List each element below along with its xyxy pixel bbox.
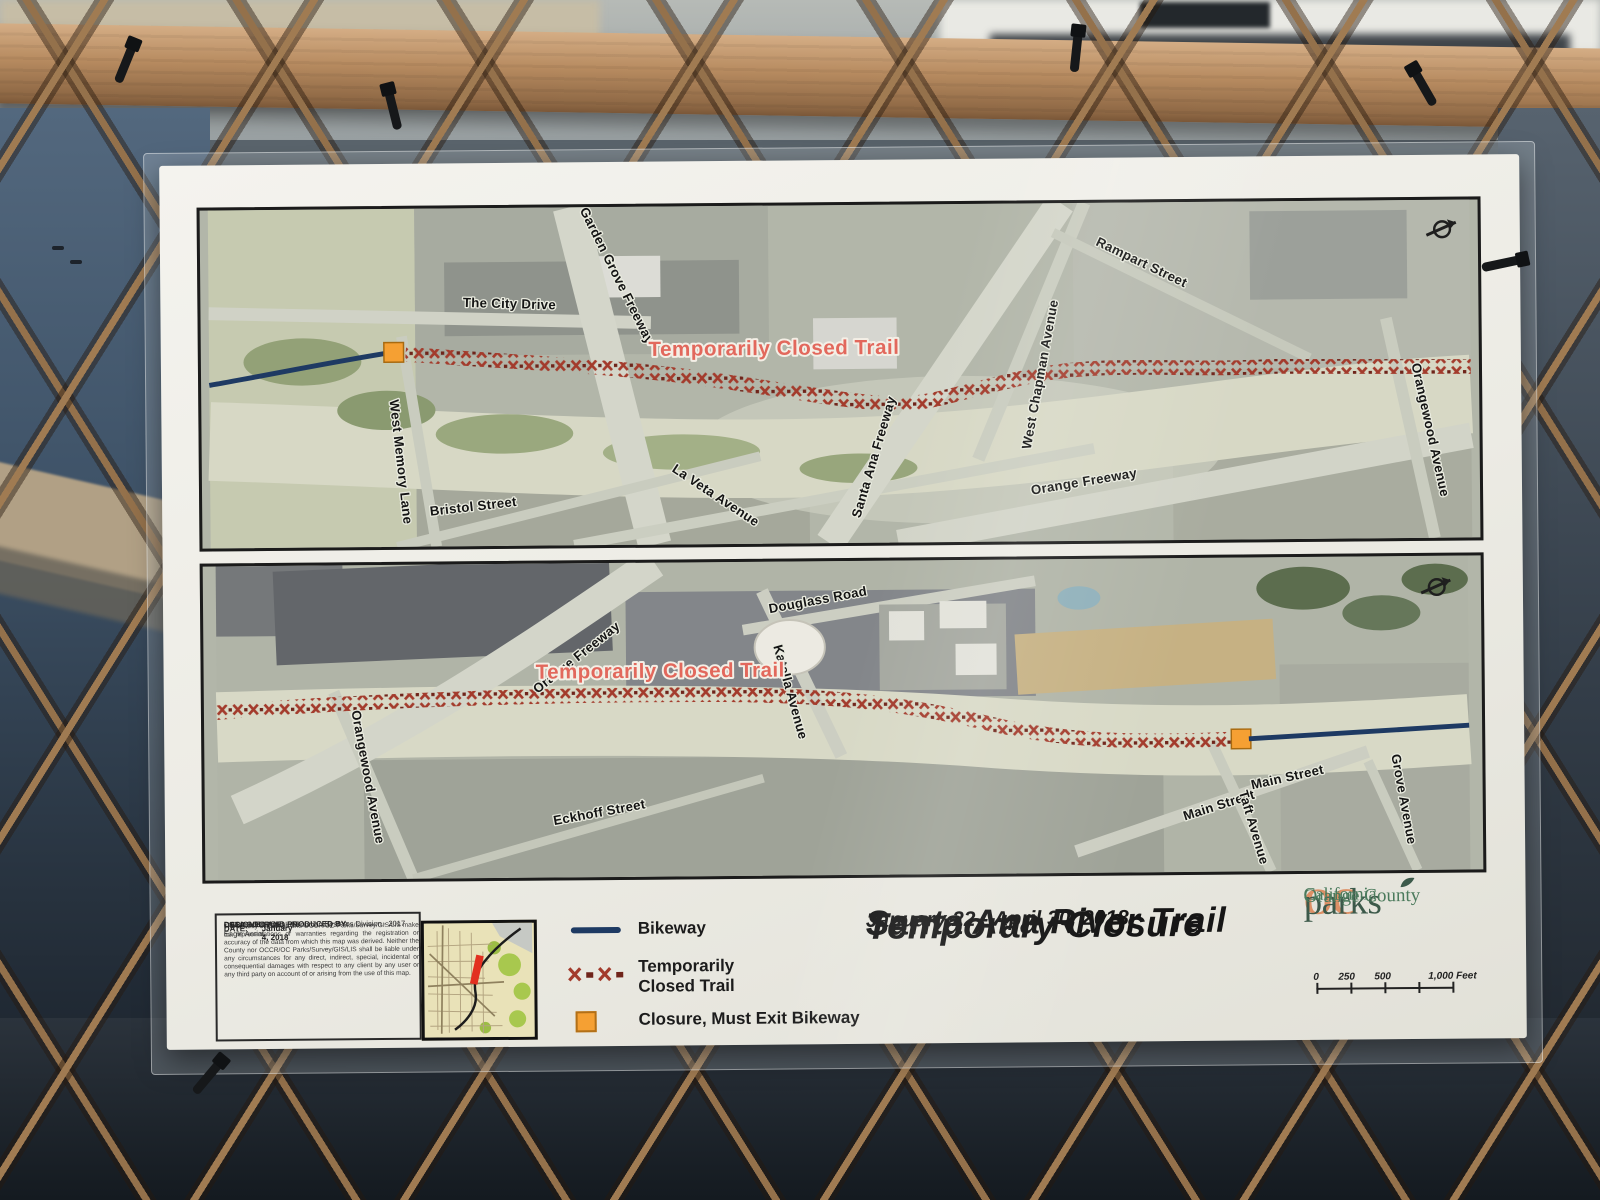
street-label: The City Drive bbox=[463, 295, 557, 312]
date-value: January 4, 2018 bbox=[262, 924, 293, 942]
scale-tick bbox=[1350, 983, 1352, 994]
map-panel-bottom: Orange Freeway Douglass Road Katella Ave… bbox=[200, 552, 1487, 883]
closure-notice-sign: The City Drive Garden Grove Freeway West… bbox=[159, 154, 1527, 1050]
bikeway-line-symbol bbox=[571, 927, 621, 933]
legend-bikeway-label: Bikeway bbox=[638, 918, 706, 939]
date-label: DATE: bbox=[224, 924, 248, 933]
map-credits-box: DESIGNED AND PRODUCED BY: OCCR - OC Park… bbox=[215, 912, 422, 1042]
closed-trail-label: Temporarily Closed Trail bbox=[648, 336, 899, 361]
disclaimer-text: The County of Orange and OCCR/OC Parks/S… bbox=[224, 922, 419, 980]
scale-250: 250 bbox=[1338, 972, 1355, 983]
map-panel-top: The City Drive Garden Grove Freeway West… bbox=[197, 196, 1484, 551]
closed-trail-symbol bbox=[565, 965, 627, 984]
aerial-map-top: The City Drive Garden Grove Freeway West… bbox=[200, 199, 1481, 548]
scale-500: 500 bbox=[1374, 971, 1391, 982]
date-row: DATE: January 4, 2018 bbox=[224, 924, 248, 933]
closure-marker-symbol bbox=[576, 1011, 597, 1032]
scale-tick bbox=[1384, 982, 1386, 993]
locator-map bbox=[424, 923, 535, 1038]
scale-1000: 1,000 Feet bbox=[1428, 970, 1476, 981]
locator-inset-map bbox=[421, 920, 538, 1041]
scale-bar: 0 250 500 1,000 Feet bbox=[1316, 970, 1486, 1001]
closure-exit-marker bbox=[384, 342, 404, 362]
scale-0: 0 bbox=[1313, 972, 1319, 983]
legend-closed-trail-label: Temporarily Closed Trail bbox=[638, 956, 778, 997]
scale-tick bbox=[1418, 982, 1420, 993]
legend-closure-label: Closure, Must Exit Bikeway bbox=[639, 1008, 860, 1030]
legend: Bikeway Temporarily Closed Trail Closure… bbox=[563, 905, 864, 1048]
closure-dates: January 22 - April 30, 2018 bbox=[866, 907, 1129, 933]
scale-tick bbox=[1452, 982, 1454, 993]
aerial-map-bottom: Orange Freeway Douglass Road Katella Ave… bbox=[203, 555, 1484, 880]
logo-state: California bbox=[1303, 883, 1376, 905]
photo-of-trail-closure-sign: The City Drive Garden Grove Freeway West… bbox=[0, 0, 1600, 1200]
closed-trail-label: Temporarily Closed Trail bbox=[536, 659, 785, 684]
scale-tick bbox=[1316, 983, 1318, 994]
closure-exit-marker bbox=[1231, 729, 1251, 749]
